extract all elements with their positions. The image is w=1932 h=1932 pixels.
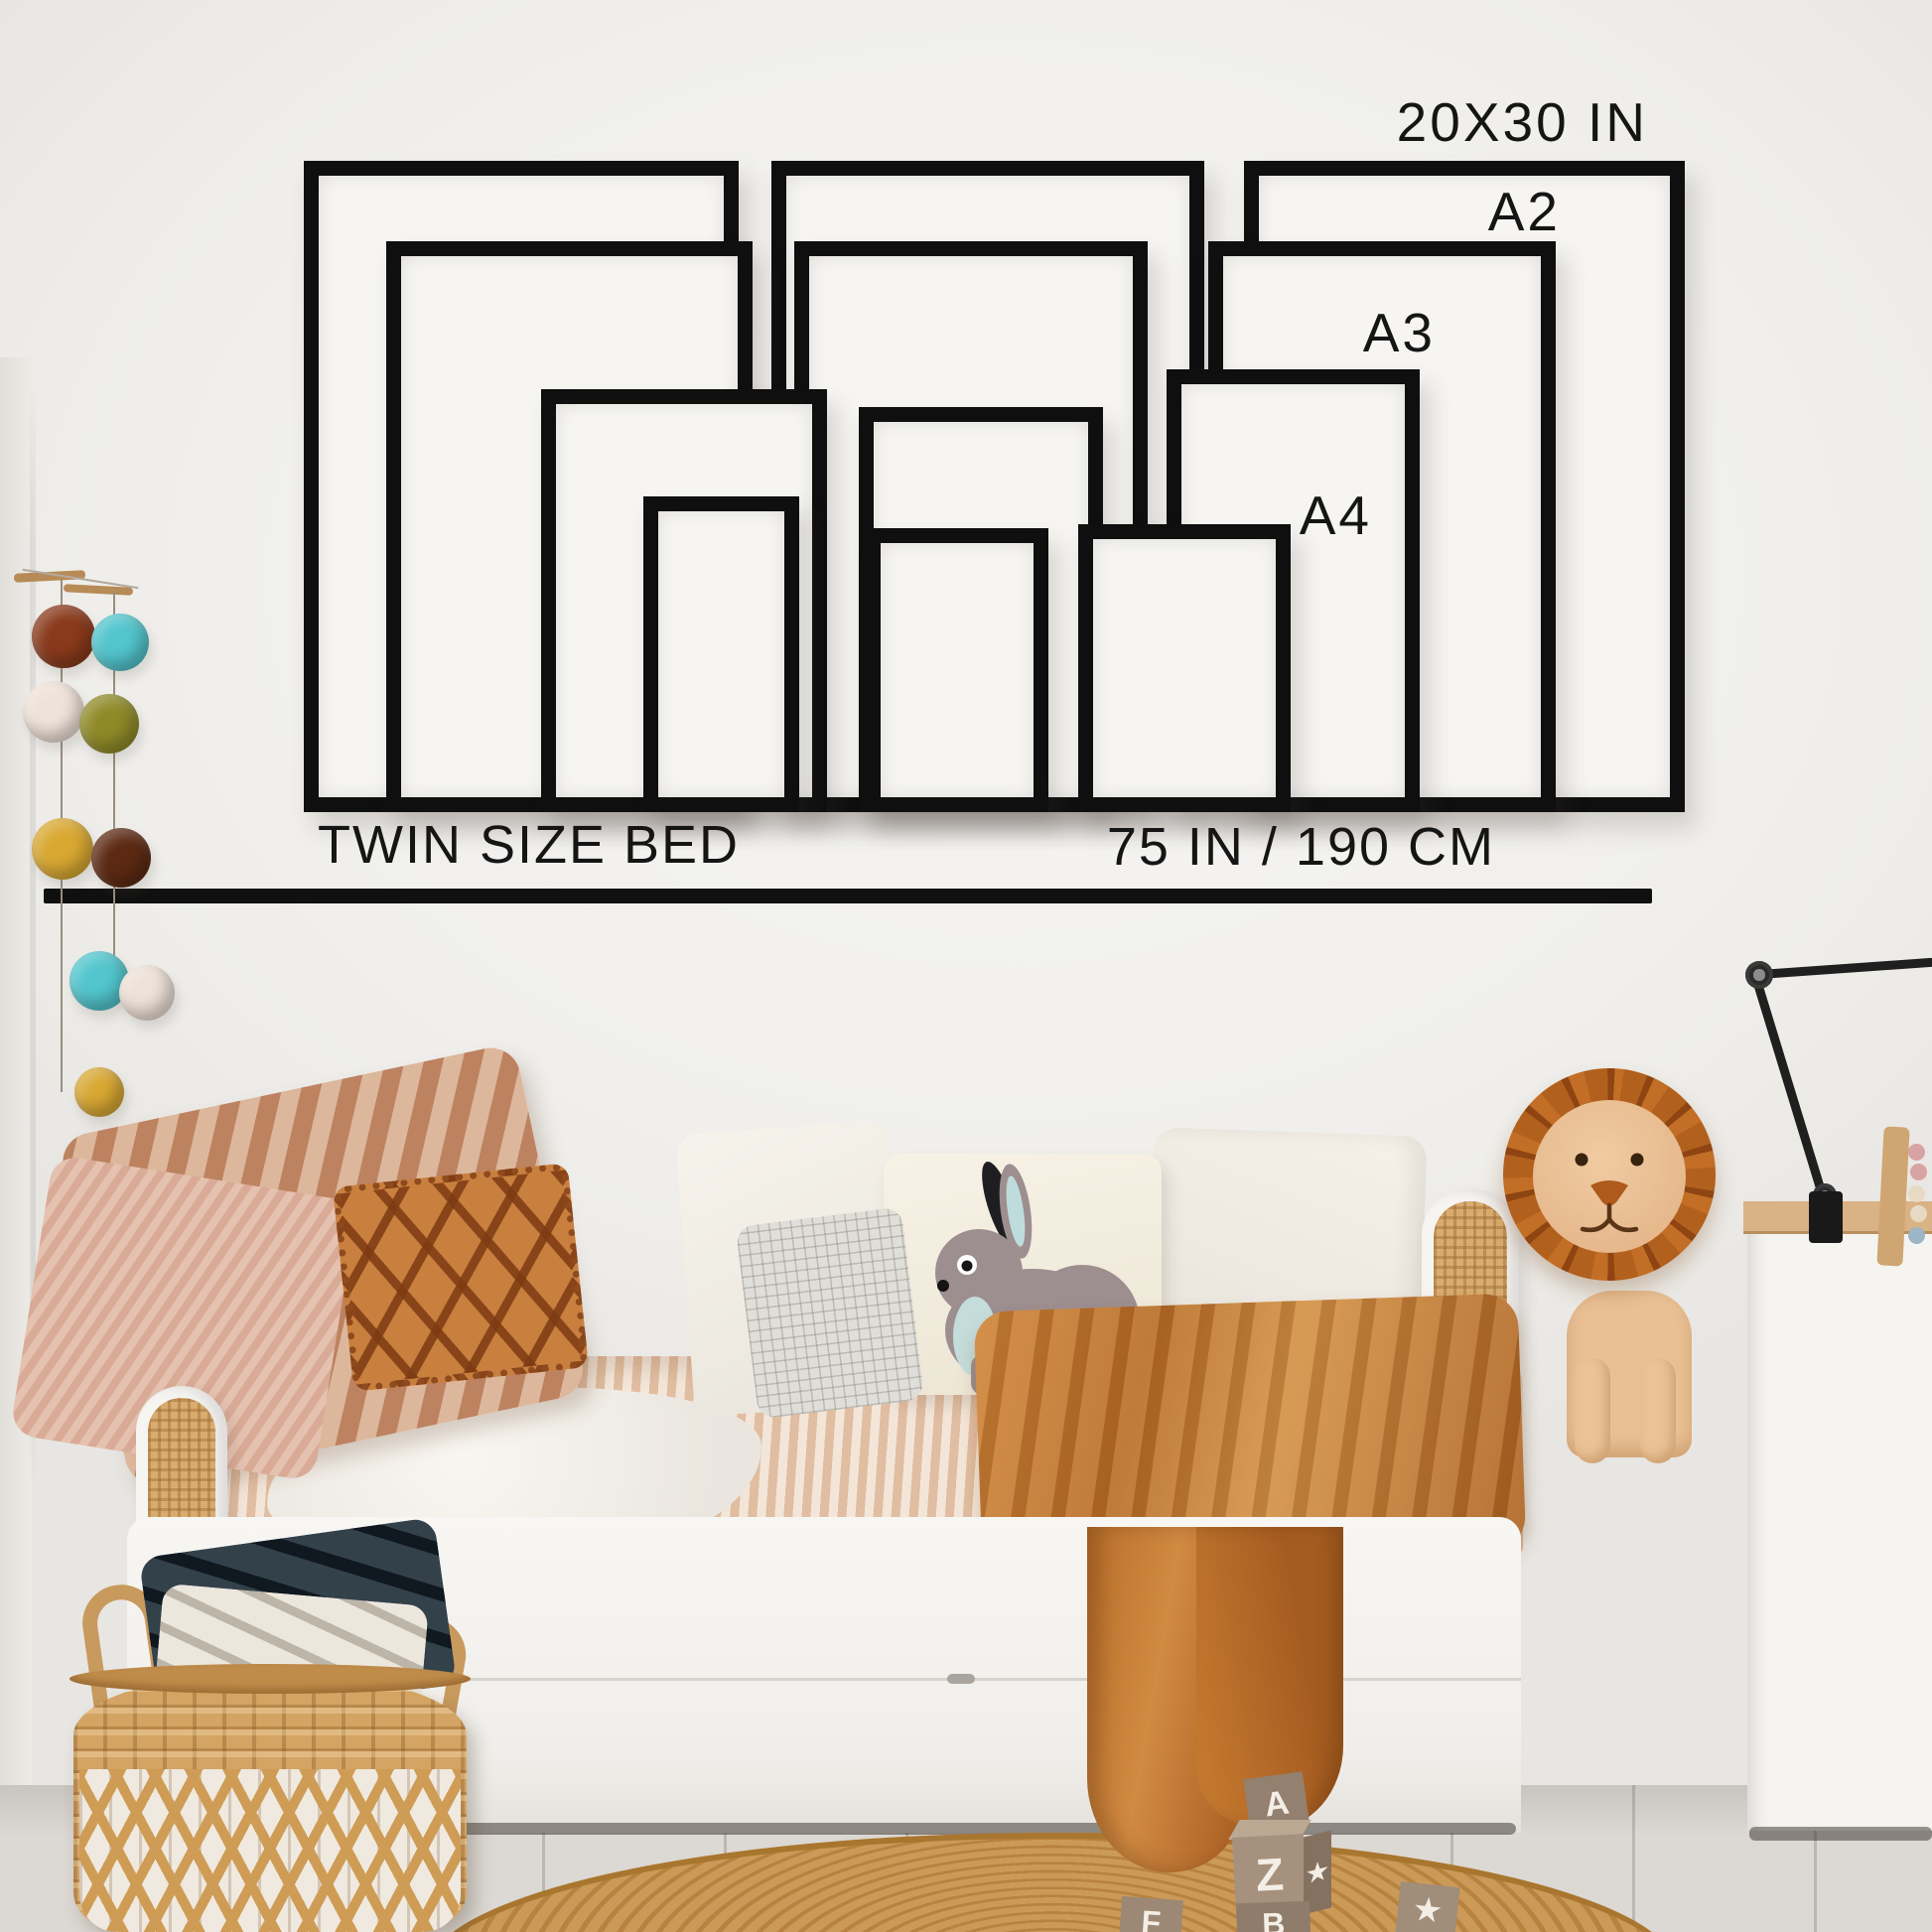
nightstand-shadow bbox=[1749, 1827, 1932, 1841]
pompom-brown bbox=[91, 828, 151, 888]
letter-block-b: B bbox=[1236, 1901, 1311, 1932]
lion-plush bbox=[1489, 1064, 1743, 1461]
pompom-yellow bbox=[32, 818, 93, 880]
drawer-handle bbox=[947, 1674, 975, 1684]
abacus-bead-cream bbox=[1908, 1185, 1925, 1202]
lamp-clamp bbox=[1809, 1191, 1843, 1243]
abacus-bead-pink bbox=[1910, 1164, 1927, 1180]
pompom-cream bbox=[119, 965, 175, 1021]
lion-leg bbox=[1575, 1358, 1610, 1463]
check-pillow bbox=[736, 1206, 925, 1419]
abacus-bead-blue bbox=[1908, 1227, 1925, 1244]
lion-face bbox=[1533, 1100, 1686, 1253]
tufted-terracotta-pillow bbox=[333, 1163, 589, 1392]
basket-rim bbox=[69, 1664, 471, 1694]
pompom-olive bbox=[79, 694, 139, 754]
basket-lattice-weave bbox=[79, 1769, 461, 1932]
lion-leg bbox=[1640, 1358, 1676, 1463]
twin-size-bed-label: TWIN SIZE BED bbox=[318, 818, 740, 872]
bed-width-label: 75 IN / 190 CM bbox=[1107, 820, 1495, 874]
pompom-yellow bbox=[74, 1067, 124, 1117]
letter-block-star: ★ bbox=[1395, 1881, 1459, 1932]
rattan-basket bbox=[73, 1674, 467, 1932]
lamp-elbow-joint bbox=[1745, 961, 1773, 989]
pompom-rust bbox=[32, 605, 95, 668]
nightstand bbox=[1747, 1201, 1932, 1831]
pompom-cream bbox=[23, 681, 84, 743]
letter-block-f: F bbox=[1118, 1896, 1183, 1932]
abacus-bead-cream bbox=[1910, 1205, 1927, 1222]
lion-face-features bbox=[1533, 1100, 1686, 1253]
pompom-teal bbox=[91, 614, 149, 671]
room-scene: 20X30 IN A2 A3 A4 TWIN SIZE BED 75 IN / … bbox=[0, 0, 1932, 1932]
abacus-bead-pink bbox=[1908, 1144, 1925, 1161]
